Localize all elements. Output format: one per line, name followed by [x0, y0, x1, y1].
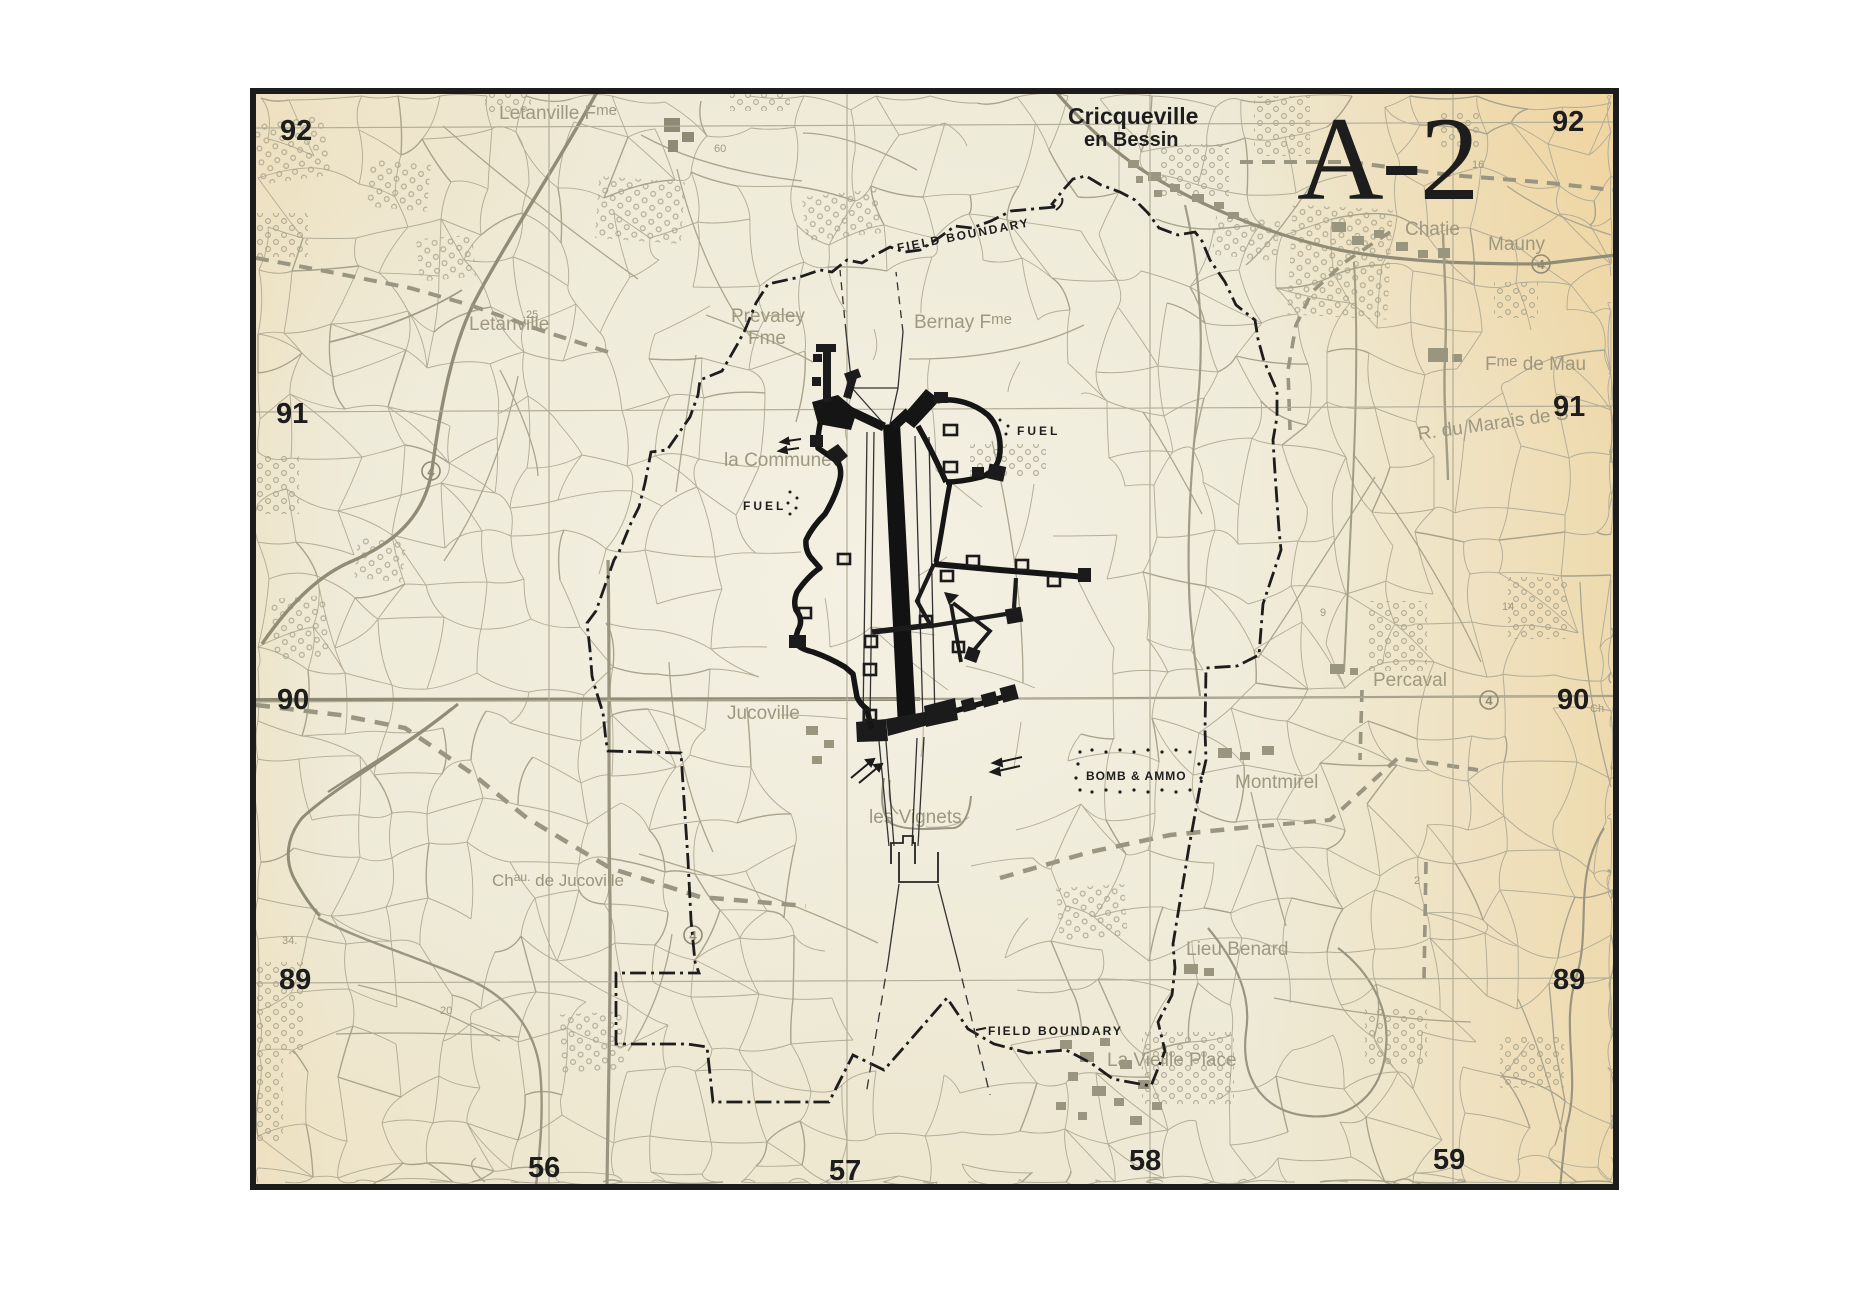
- svg-text:FIELD BOUNDARY: FIELD BOUNDARY: [988, 1024, 1123, 1038]
- svg-text:90: 90: [277, 684, 309, 716]
- svg-text:2: 2: [1414, 875, 1420, 887]
- svg-text:14: 14: [1502, 601, 1514, 613]
- svg-text:FUEL: FUEL: [743, 499, 786, 513]
- svg-text:Cricqueville: Cricqueville: [1068, 103, 1198, 129]
- svg-text:Lieu Benard: Lieu Benard: [1186, 939, 1288, 960]
- svg-text:Mauny: Mauny: [1488, 234, 1546, 255]
- svg-text:58: 58: [1129, 1145, 1161, 1177]
- svg-text:9: 9: [1320, 607, 1326, 619]
- svg-text:A-2: A-2: [1297, 92, 1478, 225]
- svg-text:Ch: Ch: [1590, 703, 1604, 715]
- svg-text:BOMB & AMMO: BOMB & AMMO: [1086, 769, 1187, 783]
- svg-text:les Vignets: les Vignets: [869, 807, 962, 828]
- svg-text:4: 4: [427, 464, 435, 479]
- svg-text:92: 92: [1552, 106, 1584, 138]
- svg-text:90: 90: [1557, 684, 1589, 716]
- svg-text:34.: 34.: [282, 935, 297, 947]
- svg-text:4: 4: [1537, 257, 1545, 272]
- svg-text:Chau. de Jucoville: Chau. de Jucoville: [492, 870, 624, 890]
- svg-text:Percaval: Percaval: [1373, 670, 1447, 691]
- svg-text:92: 92: [280, 115, 312, 147]
- svg-text:en Bessin: en Bessin: [1084, 129, 1178, 151]
- svg-text:.25: .25: [523, 309, 538, 321]
- svg-text:La Vieille Place: La Vieille Place: [1107, 1050, 1237, 1071]
- svg-text:60: 60: [714, 143, 726, 155]
- svg-text:Montmirel: Montmirel: [1235, 772, 1318, 793]
- svg-text:20: 20: [440, 1005, 452, 1017]
- svg-text:59: 59: [1433, 1144, 1465, 1176]
- svg-text:57: 57: [829, 1155, 861, 1187]
- svg-text:4: 4: [1485, 693, 1493, 708]
- svg-text:91: 91: [1553, 391, 1585, 423]
- svg-text:Fme: Fme: [748, 328, 786, 349]
- svg-text:91: 91: [276, 398, 308, 430]
- svg-text:la Commune: la Commune: [724, 450, 832, 471]
- svg-text:Prevaley: Prevaley: [731, 306, 805, 327]
- svg-text:56: 56: [528, 1152, 560, 1184]
- svg-text:Jucoville: Jucoville: [727, 703, 800, 724]
- svg-text:89: 89: [1553, 964, 1585, 996]
- svg-text:89: 89: [279, 964, 311, 996]
- svg-text:FUEL: FUEL: [1017, 424, 1060, 438]
